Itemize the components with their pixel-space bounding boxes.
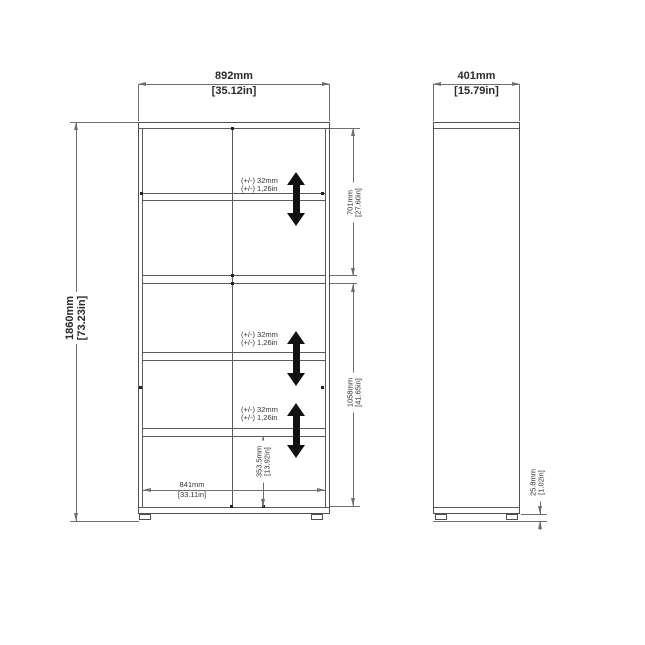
lowest-shelf-imperial-label: [13.92in]	[263, 447, 271, 476]
dimension-arrow-icon	[351, 498, 355, 506]
side-floor-line	[433, 521, 547, 522]
adjustable-shelf-arrow-icon	[286, 403, 306, 458]
extension-line	[521, 514, 547, 515]
front-width-imperial-label: [35.12in]	[138, 85, 330, 97]
front-right-panel-inner-line	[325, 128, 326, 507]
vertex-dot	[230, 505, 233, 508]
bookcase-dimension-drawing: 892mm [35.12in] 1860mm [73.23in] 701mm […	[0, 0, 645, 645]
adjustable-shelf-arrow-icon	[286, 172, 306, 226]
front-right-foot	[311, 514, 323, 520]
dimension-arrow-icon	[351, 128, 355, 136]
side-depth-metric-label: 401mm	[433, 70, 520, 82]
front-top-section-label: 701mm [27.60in]	[346, 183, 363, 223]
dimension-arrow-icon	[351, 284, 355, 292]
dimension-arrow-icon	[317, 488, 325, 492]
vertex-dot	[321, 192, 324, 195]
foot-height-imperial-label: [1.02in]	[537, 470, 545, 495]
shelf-2-bottom-line	[143, 283, 325, 284]
front-center-seam-line	[232, 128, 233, 507]
vertex-dot	[139, 386, 142, 389]
dimension-arrow-icon	[74, 122, 78, 130]
front-height-metric-label: 1860mm	[64, 296, 76, 340]
adjustment-label: (+/-) 32mm (+/-) 1,26in	[241, 177, 278, 193]
extension-line	[330, 506, 360, 507]
side-top-panel-inner-line	[434, 128, 519, 129]
adjustment-label: (+/-) 32mm (+/-) 1,26in	[241, 331, 278, 347]
dimension-arrow-icon	[143, 488, 151, 492]
foot-height-label: 25.8mm [1.02in]	[529, 464, 546, 502]
side-bottom-panel-inner-line	[434, 507, 519, 508]
front-top-panel-inner-line	[139, 128, 329, 129]
floor-extension-line	[70, 521, 139, 522]
adjustment-imperial-label: (+/-) 1,26in	[241, 414, 278, 422]
extension-line	[70, 122, 138, 123]
lowest-shelf-label: 353.5mm [13.92in]	[255, 441, 272, 483]
vertex-dot	[231, 127, 234, 130]
extension-line	[330, 128, 360, 129]
front-height-label: 1860mm [73.23in]	[63, 292, 89, 344]
adjustable-shelf-arrow-icon	[286, 331, 306, 386]
adjustment-imperial-label: (+/-) 1,26in	[241, 185, 278, 193]
bottom-section-imperial-label: [41.65in]	[354, 378, 362, 407]
side-back-foot	[506, 514, 518, 520]
front-width-metric-label: 892mm	[138, 70, 330, 82]
vertex-dot	[321, 386, 324, 389]
side-cabinet-outline	[433, 122, 520, 514]
front-bottom-panel-inner-line	[139, 507, 329, 508]
interior-width-metric-label: 841mm	[160, 481, 224, 489]
adjustment-label: (+/-) 32mm (+/-) 1,26in	[241, 406, 278, 422]
interior-width-imperial-label: [33.11in]	[160, 491, 224, 499]
front-bottom-section-label: 1058mm [41.65in]	[346, 373, 363, 413]
vertex-dot	[140, 192, 143, 195]
shelf-2-top-line	[143, 275, 325, 276]
front-left-panel-inner-line	[142, 128, 143, 507]
dimension-arrow-icon	[74, 513, 78, 521]
vertex-dot	[231, 274, 234, 277]
dimension-arrow-icon	[351, 268, 355, 276]
dimension-arrow-icon	[261, 499, 265, 507]
dimension-arrow-icon	[538, 521, 542, 529]
vertex-dot	[231, 282, 234, 285]
front-height-imperial-label: [73.23in]	[76, 296, 88, 341]
adjustment-imperial-label: (+/-) 1,26in	[241, 339, 278, 347]
front-left-foot	[139, 514, 151, 520]
side-front-foot	[435, 514, 447, 520]
dimension-arrow-icon	[538, 506, 542, 514]
top-section-imperial-label: [27.60in]	[354, 188, 362, 217]
side-depth-imperial-label: [15.79in]	[433, 85, 520, 97]
